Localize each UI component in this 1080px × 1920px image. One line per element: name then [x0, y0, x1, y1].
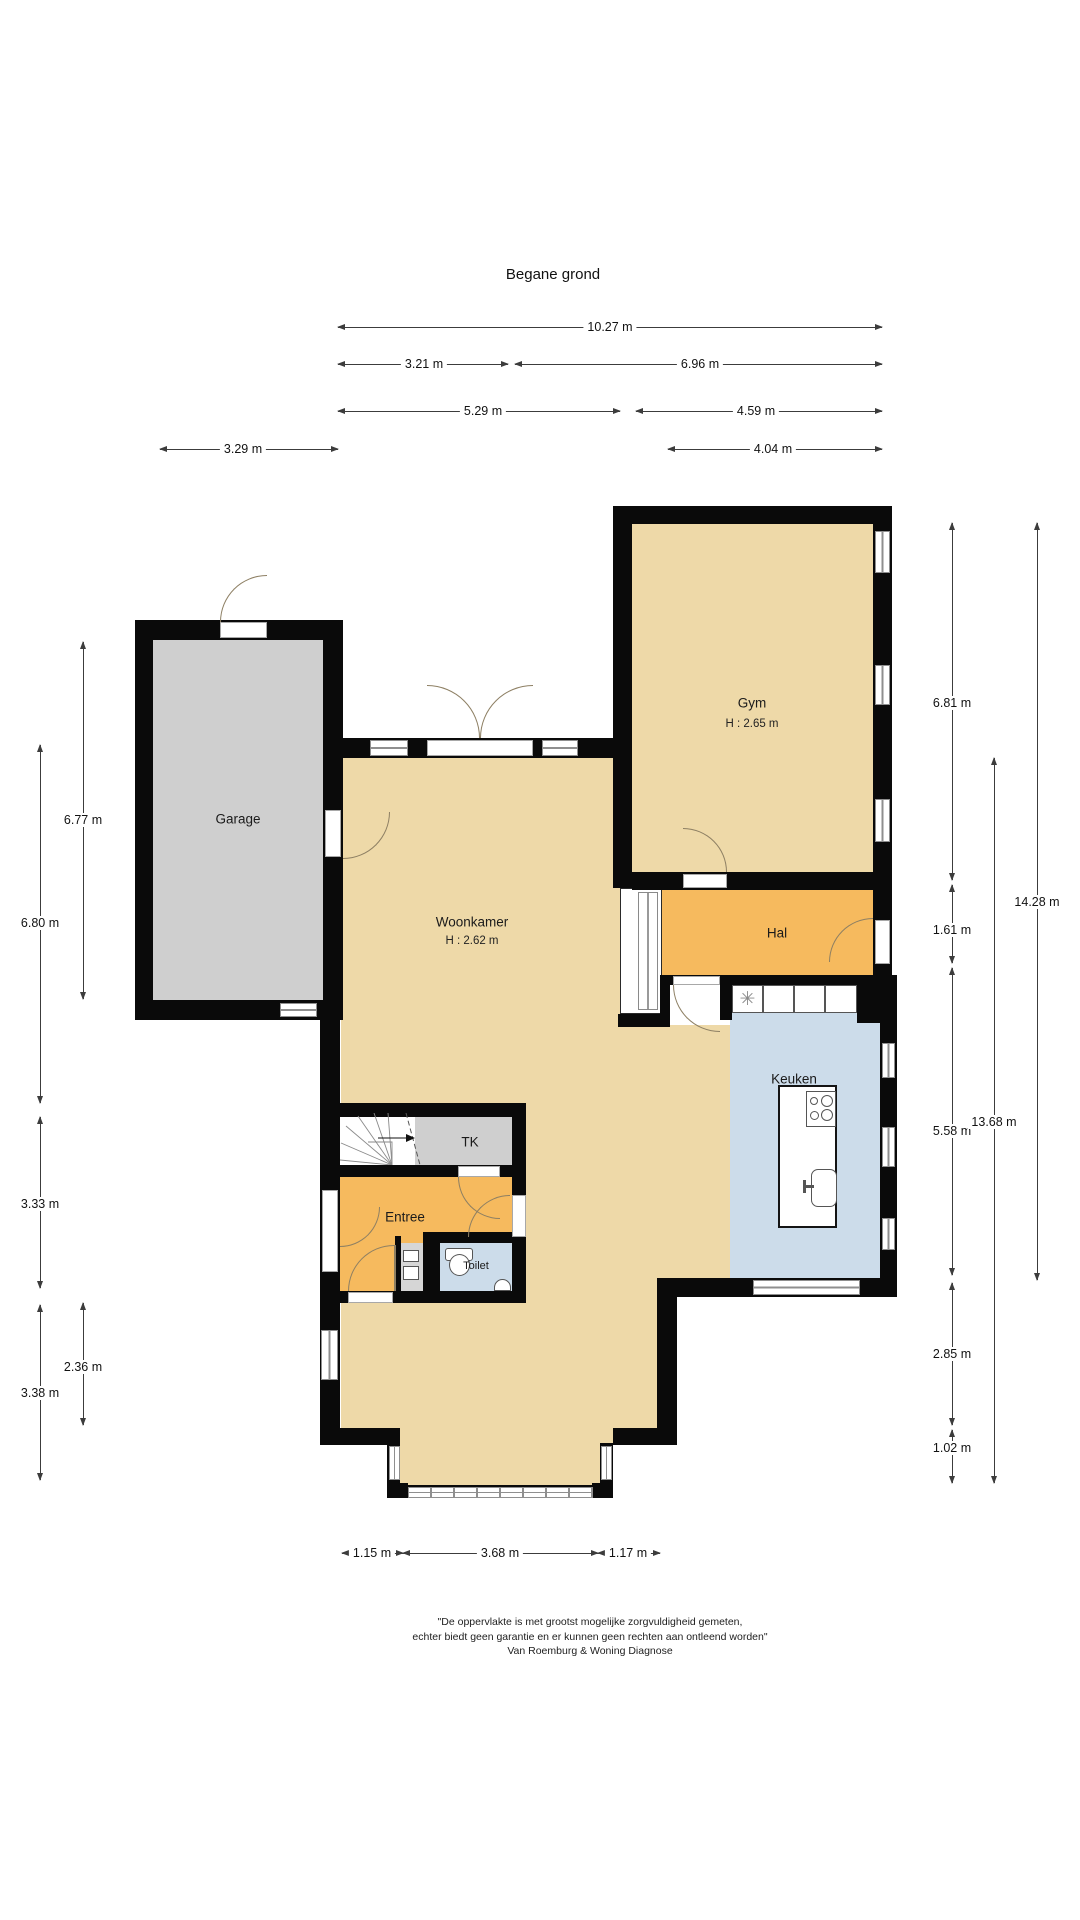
- dim-label-top-404: 4.04 m: [750, 442, 796, 456]
- page-title: Begane grond: [353, 266, 753, 283]
- dim-label-right-1428: 14.28 m: [1010, 895, 1063, 909]
- window-bay-bottom: [408, 1487, 593, 1498]
- dim-label-left-236: 2.36 m: [60, 1360, 106, 1374]
- dim-label-right-681: 6.81 m: [929, 696, 975, 710]
- wall-closet-right: [660, 975, 670, 1025]
- bay-window-floor: [400, 1443, 613, 1485]
- dim-label-left-333: 3.33 m: [17, 1197, 63, 1211]
- dim-label-bottom-368: 3.68 m: [477, 1546, 523, 1560]
- dim-line-right-558: [952, 968, 953, 1275]
- entree-label: Entree: [385, 1210, 425, 1225]
- wall-gym-left: [613, 506, 632, 758]
- window-left-lower: [321, 1330, 338, 1380]
- wall-gym-woonkamer: [613, 758, 632, 888]
- wall-bottom-right-of-bay: [613, 1428, 677, 1445]
- toilet-label: Toilet: [463, 1260, 489, 1272]
- window-bay-right: [601, 1446, 612, 1480]
- window-keuken-right-3: [882, 1218, 895, 1250]
- meterkast-box-1: [403, 1250, 419, 1262]
- kitchen-cabinet-cell-4: [825, 985, 857, 1013]
- dim-label-left-680: 6.80 m: [17, 916, 63, 930]
- door-opening-entree-woonkamer: [348, 1292, 393, 1303]
- wall-lower-right: [657, 1297, 677, 1445]
- woonkamer-floor: [341, 758, 620, 1443]
- dim-label-right-102: 1.02 m: [929, 1441, 975, 1455]
- door-arc-garage-top: [220, 575, 267, 622]
- toilet-sink: [494, 1279, 511, 1291]
- floorplan-page: Begane grond 10.27 m 3.21 m 6.96 m 5.29 …: [0, 0, 1080, 1920]
- hal-label: Hal: [767, 926, 787, 941]
- keuken-label: Keuken: [771, 1072, 817, 1087]
- dim-label-bottom-117: 1.17 m: [605, 1546, 651, 1560]
- closet-shelves: [638, 892, 658, 1010]
- wall-gym-hal: [632, 872, 890, 890]
- kitchen-cabinet-cell-2: [763, 985, 794, 1013]
- wall-toilet-left: [423, 1232, 440, 1291]
- wall-bay-post-left: [387, 1483, 408, 1498]
- dim-label-right-161: 1.61 m: [929, 923, 975, 937]
- kitchen-cabinet-cell-1: ✳: [732, 985, 763, 1013]
- door-arc-french-right: [480, 685, 533, 738]
- window-gym-right-1: [875, 531, 890, 573]
- wall-gym-top: [613, 506, 892, 524]
- door-opening-front-door: [322, 1190, 338, 1272]
- gym-label: Gym: [738, 696, 767, 711]
- dim-label-top-1027: 10.27 m: [583, 320, 636, 334]
- dim-label-right-1368: 13.68 m: [967, 1115, 1020, 1129]
- window-woonkamer-top-left: [370, 740, 408, 756]
- woonkamer-floor-right: [657, 1025, 730, 1278]
- dim-label-top-329: 3.29 m: [220, 442, 266, 456]
- cooktop-burner-4: [821, 1109, 833, 1121]
- dim-label-left-338: 3.38 m: [17, 1386, 63, 1400]
- wall-bay-post-right: [592, 1483, 613, 1498]
- woonkamer-label: Woonkamer: [436, 915, 509, 930]
- window-keuken-right-2: [882, 1127, 895, 1167]
- meterkast-box-2: [403, 1266, 419, 1280]
- dim-label-right-285: 2.85 m: [929, 1347, 975, 1361]
- wall-left-mid: [320, 1005, 340, 1165]
- door-arc-french-left: [427, 685, 480, 738]
- garage-label: Garage: [215, 812, 260, 827]
- ventilation-icon: ✳: [740, 989, 756, 1010]
- dim-line-right-102: [952, 1430, 953, 1483]
- window-woonkamer-top-right: [542, 740, 578, 756]
- disclaimer: "De oppervlakte is met grootst mogelijke…: [290, 1615, 890, 1659]
- door-opening-gym-hal: [683, 874, 727, 888]
- disclaimer-line-2: echter biedt geen garantie en er kunnen …: [290, 1630, 890, 1645]
- dim-label-top-459: 4.59 m: [733, 404, 779, 418]
- window-keuken-bottom: [753, 1280, 860, 1295]
- kitchen-sink: [811, 1169, 837, 1207]
- sink-faucet-handle: [803, 1180, 806, 1193]
- door-opening-garage-top: [220, 622, 267, 638]
- stairs-drawing: [340, 1113, 422, 1165]
- door-opening-hal-right: [875, 920, 890, 964]
- window-garage-bottom: [280, 1003, 317, 1017]
- door-opening-tk: [458, 1166, 500, 1177]
- kitchen-cabinet-cell-3: [794, 985, 825, 1013]
- disclaimer-line-3: Van Roemburg & Woning Diagnose: [290, 1644, 890, 1659]
- dim-label-top-321: 3.21 m: [401, 357, 447, 371]
- tk-label: TK: [461, 1135, 478, 1150]
- door-opening-garage-woonkamer: [325, 810, 341, 857]
- dim-label-left-677: 6.77 m: [60, 813, 106, 827]
- dim-label-bottom-115: 1.15 m: [349, 1546, 395, 1560]
- window-bay-left: [389, 1446, 400, 1480]
- window-keuken-right-1: [882, 1043, 895, 1078]
- door-leaf-entree-woonkamer: [394, 1245, 396, 1291]
- cooktop-burner-3: [821, 1095, 833, 1107]
- cooktop-burner-1: [810, 1097, 818, 1105]
- door-opening-hal-keuken: [673, 976, 720, 985]
- woonkamer-floor-mid: [620, 1025, 660, 1443]
- door-opening-entree-hal: [512, 1195, 526, 1237]
- dim-label-top-696: 6.96 m: [677, 357, 723, 371]
- cooktop-burner-2: [810, 1111, 819, 1120]
- window-gym-right-2: [875, 665, 890, 705]
- disclaimer-line-1: "De oppervlakte is met grootst mogelijke…: [290, 1615, 890, 1630]
- dim-label-top-529: 5.29 m: [460, 404, 506, 418]
- gym-height-label: H : 2.65 m: [725, 718, 778, 730]
- wall-hal-door-post: [720, 980, 732, 1020]
- woonkamer-height-label: H : 2.62 m: [445, 935, 498, 947]
- window-gym-right-3: [875, 799, 890, 842]
- door-opening-french-doors: [427, 740, 533, 756]
- wall-garage-left: [135, 620, 153, 1020]
